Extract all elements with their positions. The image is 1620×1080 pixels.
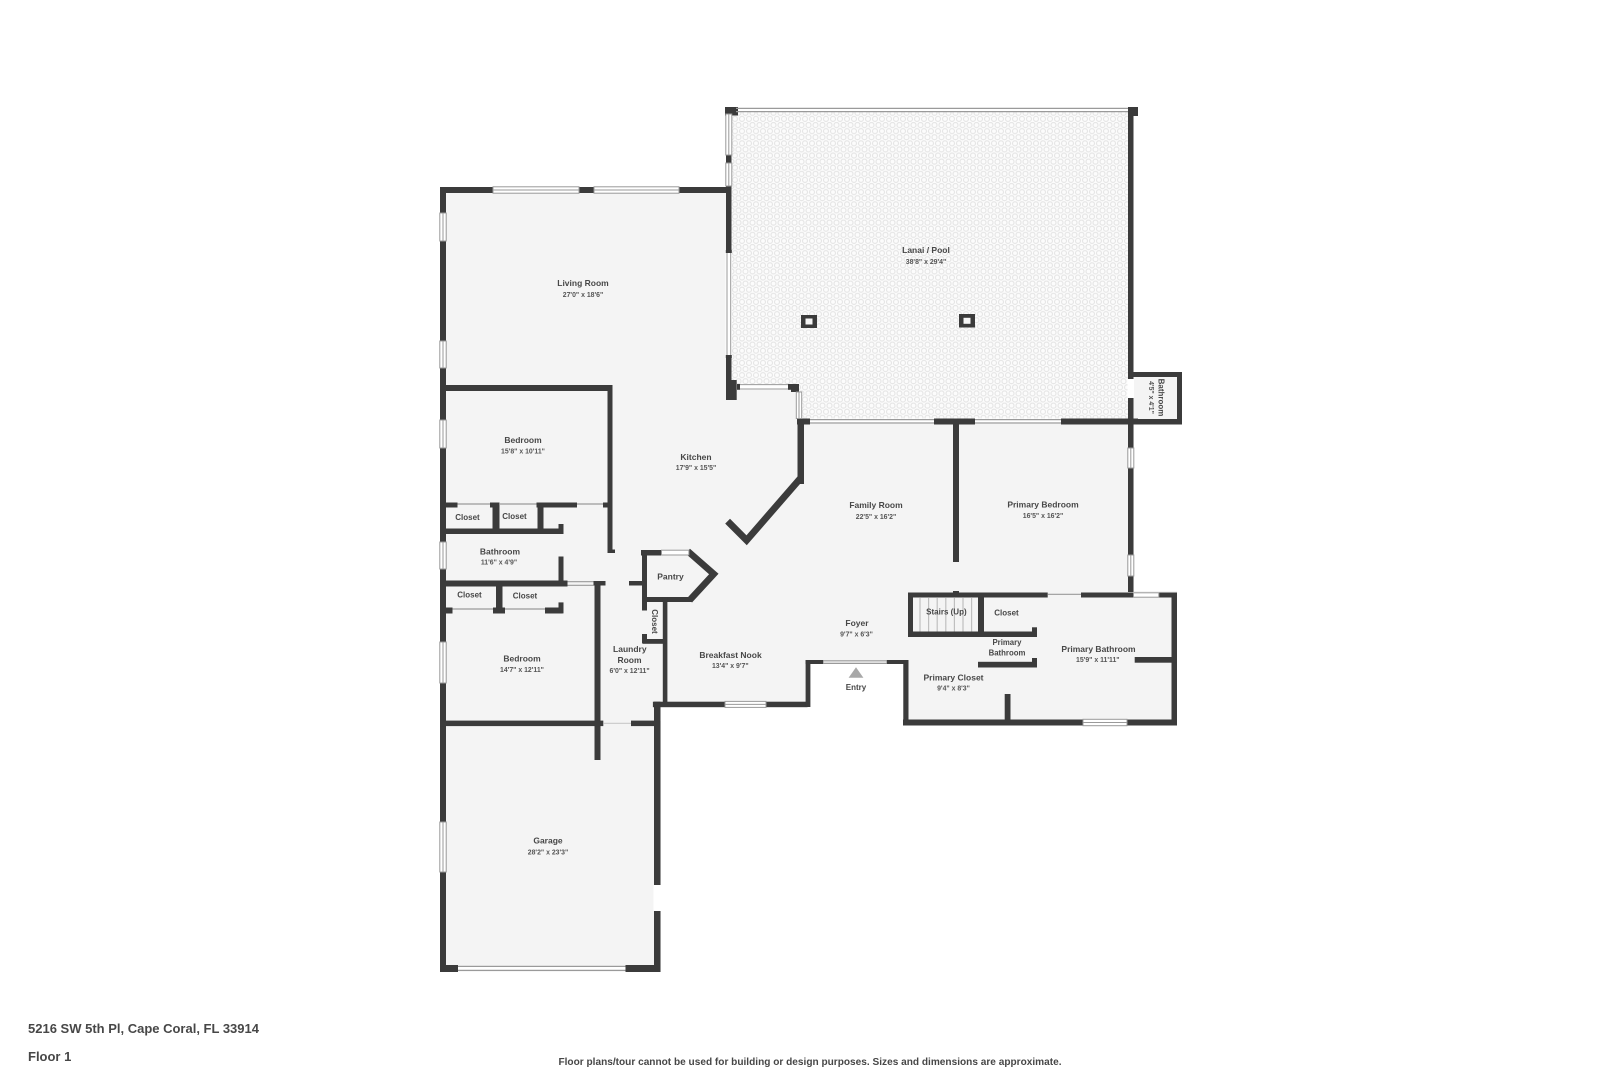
- svg-text:Closet: Closet: [455, 513, 480, 522]
- svg-text:Closet: Closet: [650, 609, 659, 634]
- svg-text:38'8" x 29'4": 38'8" x 29'4": [906, 259, 946, 266]
- svg-text:Bathroom: Bathroom: [480, 547, 521, 557]
- svg-text:Bedroom: Bedroom: [503, 654, 541, 664]
- svg-text:Kitchen: Kitchen: [680, 452, 711, 462]
- svg-text:Pantry: Pantry: [657, 572, 684, 582]
- svg-text:22'5" x 16'2": 22'5" x 16'2": [856, 514, 896, 521]
- svg-text:Closet: Closet: [502, 512, 527, 521]
- svg-text:13'4" x 9'7": 13'4" x 9'7": [712, 663, 749, 670]
- svg-text:14'7" x 12'11": 14'7" x 12'11": [500, 667, 544, 674]
- svg-text:Primary Bedroom: Primary Bedroom: [1007, 500, 1079, 510]
- svg-text:Laundry: Laundry: [613, 644, 647, 654]
- svg-text:6'0" x 12'11": 6'0" x 12'11": [610, 668, 650, 675]
- svg-text:Foyer: Foyer: [845, 618, 869, 628]
- svg-text:Entry: Entry: [846, 683, 867, 692]
- svg-text:28'2" x 23'3": 28'2" x 23'3": [528, 850, 568, 857]
- svg-text:15'8" x 10'11": 15'8" x 10'11": [501, 449, 545, 456]
- svg-text:Living Room: Living Room: [557, 278, 609, 288]
- svg-text:Breakfast Nook: Breakfast Nook: [699, 650, 762, 660]
- svg-text:Floor plans/tour cannot be use: Floor plans/tour cannot be used for buil…: [558, 1057, 1061, 1068]
- svg-text:15'9" x 11'11": 15'9" x 11'11": [1076, 657, 1120, 664]
- svg-text:27'0" x 18'6": 27'0" x 18'6": [563, 292, 603, 299]
- svg-text:Closet: Closet: [994, 609, 1019, 618]
- svg-text:Stairs (Up): Stairs (Up): [926, 608, 967, 617]
- svg-text:4'5" x 4'1": 4'5" x 4'1": [1147, 381, 1154, 414]
- svg-text:Closet: Closet: [513, 592, 538, 601]
- svg-text:Primary: Primary: [992, 638, 1022, 647]
- svg-text:Bathroom: Bathroom: [1157, 379, 1166, 417]
- svg-text:Primary Closet: Primary Closet: [924, 673, 984, 683]
- svg-text:Garage: Garage: [533, 836, 563, 846]
- svg-text:Family Room: Family Room: [849, 500, 903, 510]
- svg-text:Lanai / Pool: Lanai / Pool: [902, 245, 950, 255]
- svg-text:Floor 1: Floor 1: [28, 1049, 71, 1064]
- svg-text:Primary Bathroom: Primary Bathroom: [1061, 644, 1136, 654]
- svg-text:11'6" x 4'9": 11'6" x 4'9": [481, 560, 517, 567]
- svg-text:16'5" x 16'2": 16'5" x 16'2": [1023, 513, 1063, 520]
- svg-text:5216 SW 5th Pl, Cape Coral, FL: 5216 SW 5th Pl, Cape Coral, FL 33914: [28, 1021, 260, 1036]
- svg-text:17'9" x 15'5": 17'9" x 15'5": [676, 465, 716, 472]
- svg-text:Room: Room: [617, 655, 642, 665]
- svg-text:Closet: Closet: [457, 591, 482, 600]
- svg-text:9'7" x 6'3": 9'7" x 6'3": [840, 632, 873, 639]
- svg-text:Bedroom: Bedroom: [504, 435, 542, 445]
- svg-text:Bathroom: Bathroom: [989, 649, 1026, 658]
- svg-text:9'4" x 8'3": 9'4" x 8'3": [937, 686, 970, 693]
